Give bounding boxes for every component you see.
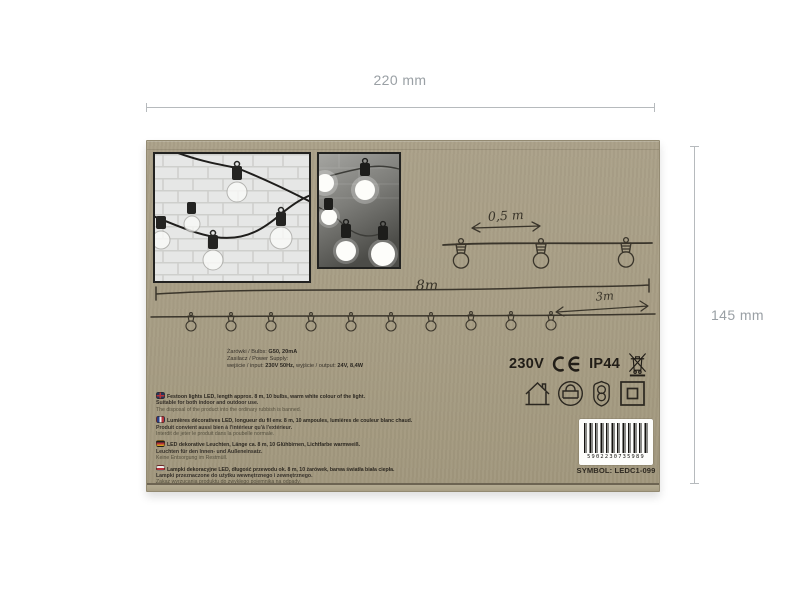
height-dimension-tick-bottom [690,483,699,484]
width-dimension-line [146,107,655,108]
spec-block: Żarówki / Bulbs: G50, 20mA Zasilacz / Po… [227,349,447,370]
safety-transformer-shield-icon [590,380,613,407]
glowing-bulbs-illustration [319,154,399,267]
description-en: Festoon lights LED, length approx. 8 m, … [156,392,456,413]
barcode-number: 5902230735989 [583,454,649,460]
width-dimension-label: 220 mm [0,72,800,88]
height-dimension-label: 145 mm [711,307,764,323]
description-de: LED dekorative Leuchten, Länge ca. 8 m, … [156,440,456,461]
description-pl: Lampki dekoracyjne LED, długość przewodu… [156,465,456,486]
safety-icons-row [524,380,646,407]
total-length-bracket [156,279,649,300]
string-length-sketch: 8m 3m [147,273,659,343]
description-block: Festoon lights LED, length approx. 8 m, … [156,392,456,489]
flag-de-icon [156,440,165,447]
product-photo-stage: 220 mm 145 mm [0,0,800,600]
cardboard-box-back-panel: 0,5 m 8m 3m Żarówki / Bulbs: G50, 20mA Z… [146,140,660,492]
string-cable [151,314,655,317]
flag-gb-icon [156,392,165,399]
description-fr: Lumières décoratives LED, longueur du fi… [156,416,456,437]
sketch-bulb [618,238,633,268]
barcode-label: 5902230735989 [579,419,653,465]
flag-pl-icon [156,465,165,472]
ce-mark-icon [551,356,582,372]
total-length-label: 8m [416,278,438,294]
sketch-bulb [453,239,468,269]
width-dimension-tick-left [146,103,147,112]
product-photo-brick-wall [153,152,311,283]
bulb-spacing-sketch: 0,5 m [433,201,663,276]
width-dimension-tick-right [654,103,655,112]
spec-io-line: wejście / input: 230V 50Hz, wyjście / ou… [227,363,447,370]
bulb-spacing-label: 0,5 m [488,207,524,224]
lead-length-label: 3m [595,288,614,303]
height-dimension-line [694,146,695,483]
spec-power-line: Zasilacz / Power Supply: [227,356,447,363]
indoor-outdoor-house-icon [524,380,551,407]
product-photo-glowing-bulbs [317,152,401,269]
barcode-bars [584,423,648,453]
height-dimension-tick-top [690,146,699,147]
weee-crossed-bin-icon [627,351,648,377]
spacing-arrow [472,222,540,232]
class-2-double-insulation-icon [619,380,646,407]
ip-rating-label: IP44 [589,356,620,372]
brick-wall-lights-illustration [155,154,309,281]
product-symbol-label: SYMBOL: LEDC1-099 [575,466,657,475]
flag-fr-icon [156,416,165,423]
voltage-label: 230V [509,356,544,372]
spec-bulbs-line: Żarówki / Bulbs: G50, 20mA [227,349,447,356]
transformer-icon [557,380,584,407]
ratings-row: 230V IP44 [509,351,648,377]
box-top-crease [147,149,659,150]
